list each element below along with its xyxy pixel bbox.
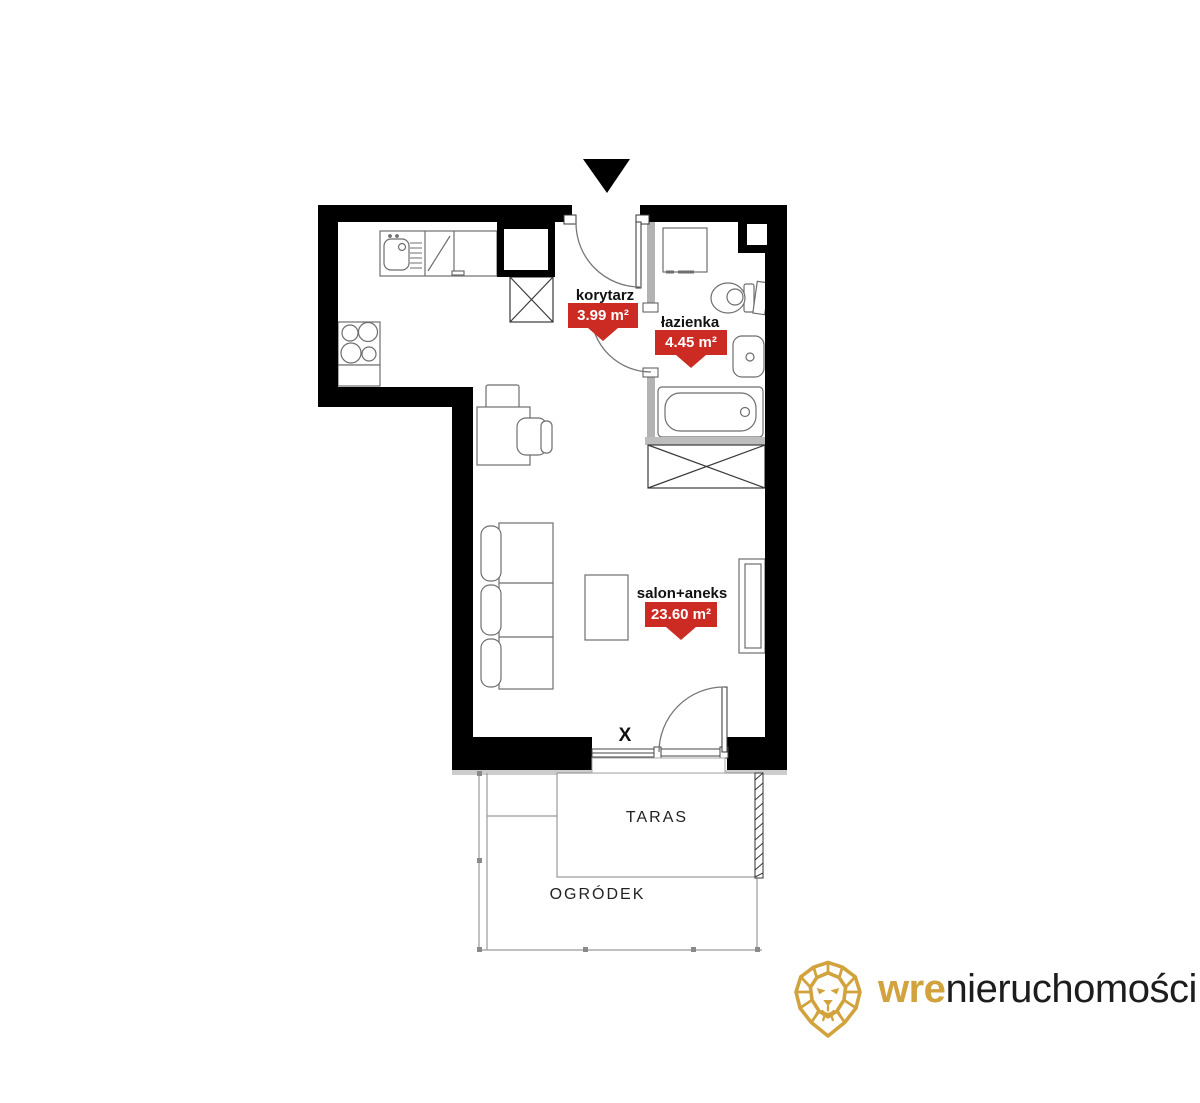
lion-icon <box>788 960 868 1040</box>
corner-shaft-notch <box>747 224 767 245</box>
entry-door <box>564 215 649 288</box>
garden-label: OGRÓDEK <box>540 886 655 904</box>
entry-shaft-inner <box>504 229 548 270</box>
entry-arrow-icon <box>583 159 630 193</box>
door-threshold <box>592 758 725 773</box>
area-tag-salon: 23.60 m² <box>645 602 717 627</box>
tv-unit <box>739 559 765 653</box>
oven-cabinet <box>338 365 380 386</box>
desk-and-chair <box>477 385 552 465</box>
washing-machine <box>663 228 707 272</box>
coffee-table <box>585 575 628 640</box>
bathtub <box>658 387 763 437</box>
room-label-salon: salon+aneks <box>632 585 732 602</box>
floorplan-page: korytarz 3.99 m² łazienka 4.45 m² salon+… <box>0 0 1200 1103</box>
terrace-garden <box>452 770 787 952</box>
stove <box>338 322 380 386</box>
logo-text-nieruchomosci: nieruchomości <box>945 967 1196 1011</box>
room-label-korytarz: korytarz <box>559 287 651 304</box>
floorplan-drawing <box>0 0 1200 1103</box>
room-label-lazienka: łazienka <box>644 314 736 331</box>
balcony-door-leaf <box>722 687 727 752</box>
sofa <box>481 523 553 689</box>
toilet <box>711 283 754 313</box>
bathroom-sink <box>733 336 764 377</box>
agency-logo: wrenieruchomości <box>788 960 1197 1040</box>
area-tag-korytarz: 3.99 m² <box>568 303 638 328</box>
kitchen-shaft-x <box>510 277 553 322</box>
logo-wordmark: wrenieruchomości <box>878 967 1197 1034</box>
logo-text-wre: wre <box>878 967 945 1011</box>
window-marker: X <box>610 725 640 747</box>
bathroom-shaft-x <box>648 445 765 488</box>
terrace-label: TARAS <box>607 809 707 827</box>
area-tag-lazienka: 4.45 m² <box>655 330 727 355</box>
bath-partition-strip <box>645 437 765 445</box>
